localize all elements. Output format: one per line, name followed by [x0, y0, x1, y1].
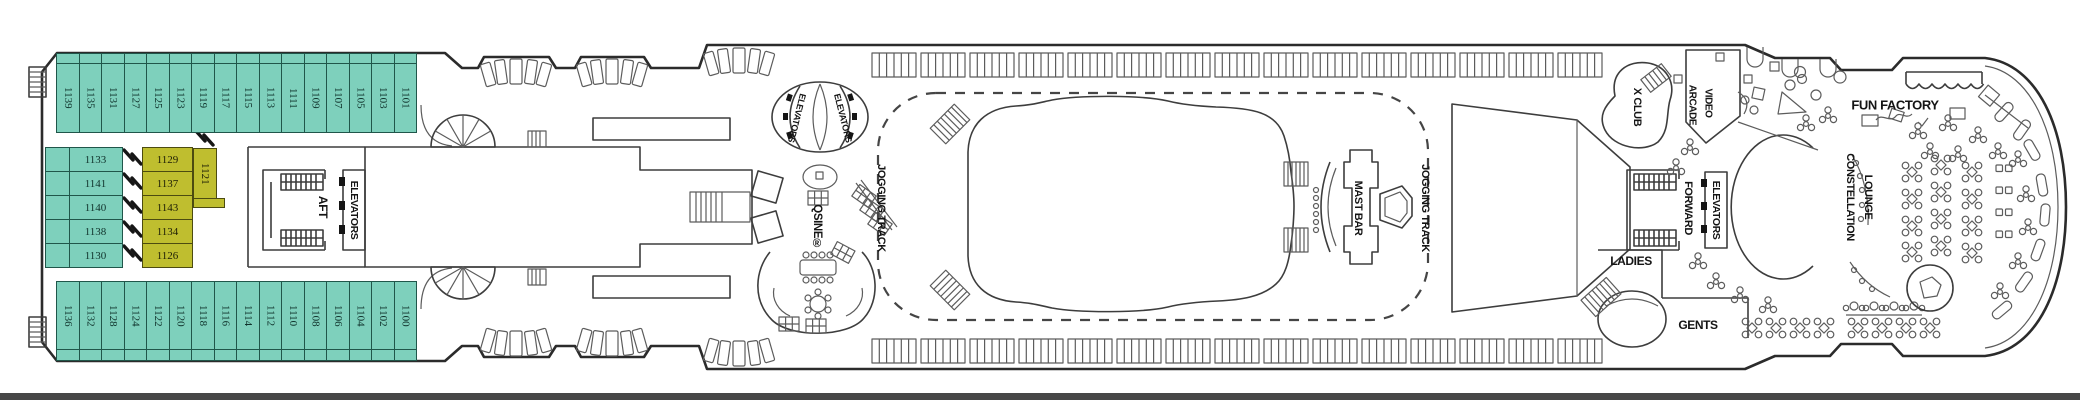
cabin[interactable]: 1104: [349, 281, 373, 361]
cabin[interactable]: 1112: [259, 281, 283, 361]
cabin[interactable]: 1127: [124, 53, 148, 133]
label-mast-bar: MAST BAR: [1352, 181, 1364, 236]
cabin[interactable]: 1117: [214, 53, 238, 133]
label-video: VIDEO: [1703, 88, 1714, 117]
cabin[interactable]: 1118: [191, 281, 215, 361]
label-constellation: CONSTELLATION: [1844, 153, 1856, 240]
cabin[interactable]: 1130: [45, 243, 123, 268]
piano-icon: [1907, 265, 1953, 311]
cabin[interactable]: 1103: [371, 53, 395, 133]
label-gents: GENTS: [1678, 318, 1717, 332]
cabin[interactable]: 1140: [45, 195, 123, 220]
funnel-casing: [365, 147, 783, 267]
label-qsine: QSINE®: [811, 204, 823, 249]
midship-elevator-lobby: [772, 82, 868, 152]
label-jogging-track-left: JOGGING TRACK: [875, 164, 887, 252]
cabin[interactable]: 1113: [259, 53, 283, 133]
label-aft: AFT: [316, 196, 330, 218]
cabin[interactable]: 1124: [124, 281, 148, 361]
cabin[interactable]: 1125: [146, 53, 170, 133]
label-arcade: ARCADE: [1687, 85, 1698, 125]
bottom-border-bar: [0, 393, 2080, 400]
lounge-foyer-circle: [1731, 135, 1813, 279]
windbreak-panels: [593, 118, 730, 298]
cabin[interactable]: 1133: [45, 147, 123, 172]
deck-lounger-rows: [872, 53, 1602, 363]
cabin[interactable]: 1139: [56, 53, 80, 133]
cabin[interactable]: 1141: [45, 171, 123, 196]
constellation-lounge-seating: [1667, 101, 2050, 338]
label-x-club: X CLUB: [1631, 88, 1643, 127]
cabin[interactable]: 1128: [101, 281, 125, 361]
cabin-1121-extension: [193, 198, 225, 208]
cabin[interactable]: 1137: [142, 171, 193, 196]
cabin[interactable]: 1114: [236, 281, 260, 361]
label-aft-elevators: ELEVATORS: [348, 181, 360, 240]
cabin[interactable]: 1120: [169, 281, 193, 361]
cabin[interactable]: 1100: [394, 281, 418, 361]
cabin-column-mid-inside: 11291137114311341126: [142, 148, 193, 268]
cabin[interactable]: 1123: [169, 53, 193, 133]
cabin[interactable]: 1116: [214, 281, 238, 361]
label-forward: FORWARD: [1682, 181, 1694, 235]
forward-stairs-icon: [1627, 170, 1679, 250]
cabin[interactable]: 1126: [142, 243, 193, 268]
deck-lounger-fans: [480, 48, 775, 366]
cabin[interactable]: 1115: [236, 53, 260, 133]
cabin[interactable]: 1109: [304, 53, 328, 133]
cabin[interactable]: 1135: [79, 53, 103, 133]
cabin[interactable]: 1110: [281, 281, 305, 361]
jogging-track-path: [878, 93, 1428, 320]
cabin-column-mid-port: 11331141114011381130: [45, 148, 123, 268]
pool-opening: [930, 96, 1318, 311]
cabin[interactable]: 1131: [101, 53, 125, 133]
cabin[interactable]: 1132: [79, 281, 103, 361]
cabin[interactable]: 1129: [142, 147, 193, 172]
cabin[interactable]: 1134: [142, 219, 193, 244]
label-lounge: LOUNGE: [1862, 175, 1874, 220]
cabin[interactable]: 1108: [304, 281, 328, 361]
midship-ladder-icons: [528, 131, 546, 285]
label-fun-factory: FUN FACTORY: [1851, 98, 1938, 113]
cabin-row-bottom: 1136113211281124112211201118111611141112…: [57, 281, 417, 361]
label-ladies: LADIES: [1610, 254, 1652, 268]
cabin-row-top: 1139113511311127112511231119111711151113…: [57, 53, 417, 133]
cabin[interactable]: 1107: [326, 53, 350, 133]
restroom-walls: [1581, 250, 1748, 347]
cabin[interactable]: 1101: [394, 53, 418, 133]
cabin[interactable]: 1122: [146, 281, 170, 361]
cabin[interactable]: 1138: [45, 219, 123, 244]
deck-plan: 1139113511311127112511231119111711151113…: [0, 0, 2080, 400]
cabin[interactable]: 1119: [191, 53, 215, 133]
label-forward-elevators: ELEVATORS: [1710, 181, 1722, 240]
cabin[interactable]: 1102: [371, 281, 395, 361]
cabin[interactable]: 1136: [56, 281, 80, 361]
label-jogging-track-right: JOGGING TRACK: [1419, 164, 1431, 252]
mooring-hatch-icons: [29, 67, 46, 347]
cabin[interactable]: 1105: [349, 53, 373, 133]
cabin[interactable]: 1121: [193, 148, 217, 199]
cabin[interactable]: 1143: [142, 195, 193, 220]
cabin[interactable]: 1106: [326, 281, 350, 361]
cabin[interactable]: 1111: [281, 53, 305, 133]
spiral-stairs-icon: [431, 115, 495, 299]
mast-bar-structure: [1321, 150, 1412, 264]
